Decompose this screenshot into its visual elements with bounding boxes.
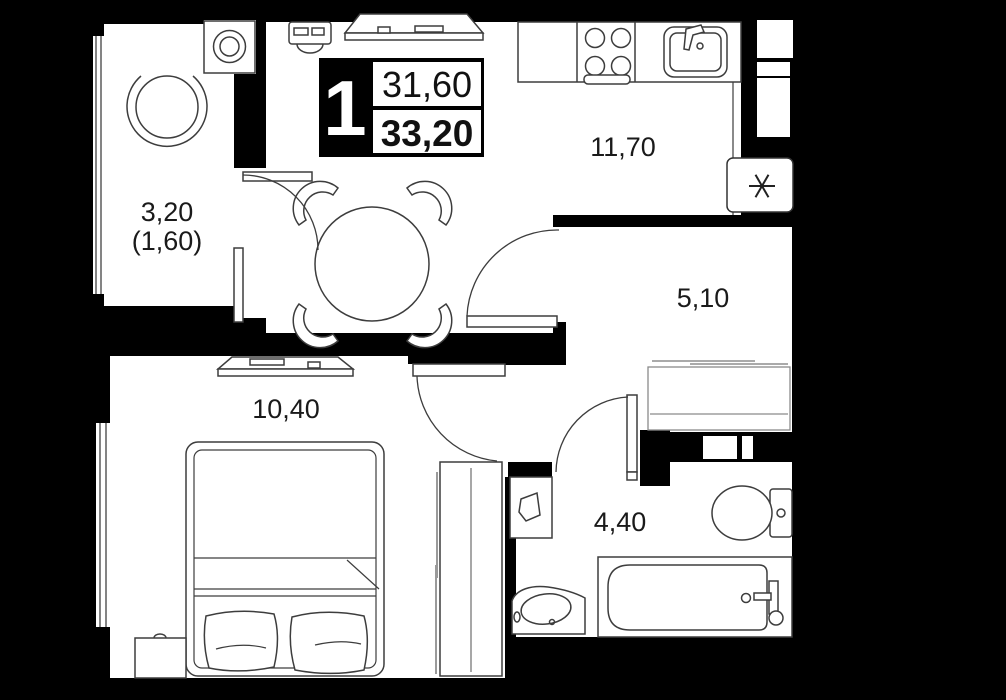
utility-cabinet [510, 477, 552, 538]
dining-table [315, 207, 429, 321]
bedroom-wardrobe [436, 462, 502, 676]
ventilation-shaft [727, 158, 793, 212]
bathtub [598, 557, 792, 637]
label-bathroom-area: 4,40 [594, 507, 647, 537]
unit-badge: 1 31,60 33,20 [319, 58, 484, 157]
hallway-wardrobe [648, 361, 790, 430]
shaft-duct [757, 78, 790, 137]
tv-bedroom [218, 357, 353, 376]
shaft-duct [757, 20, 793, 58]
floor-plan-svg: 1 31,60 33,20 3,20 (1,60) 11,70 5,10 10,… [0, 0, 1006, 700]
bedroom-window [96, 423, 110, 627]
shaft-duct [757, 62, 790, 76]
tv-living [345, 14, 483, 40]
toilet [712, 486, 792, 540]
wall-duct [742, 436, 753, 459]
floor-plan: 1 31,60 33,20 3,20 (1,60) 11,70 5,10 10,… [0, 0, 1006, 700]
bed [186, 442, 384, 676]
unit-area-living: 31,60 [382, 64, 472, 105]
label-kitchen-living-area: 11,70 [590, 132, 656, 162]
living-hall-doorway [553, 227, 566, 322]
label-balcony-area: 3,20 [141, 197, 194, 227]
pillow [204, 611, 277, 671]
washing-machine [204, 21, 255, 73]
label-bedroom-area: 10,40 [252, 394, 320, 424]
nightstand [135, 634, 186, 678]
label-hallway-area: 5,10 [677, 283, 730, 313]
label-balcony-area-reduced: (1,60) [132, 226, 203, 256]
bathroom-sink [512, 587, 585, 634]
unit-rooms-count: 1 [323, 64, 366, 152]
balcony-window [93, 36, 104, 294]
unit-area-total: 33,20 [381, 113, 474, 154]
wall-duct [703, 436, 737, 459]
